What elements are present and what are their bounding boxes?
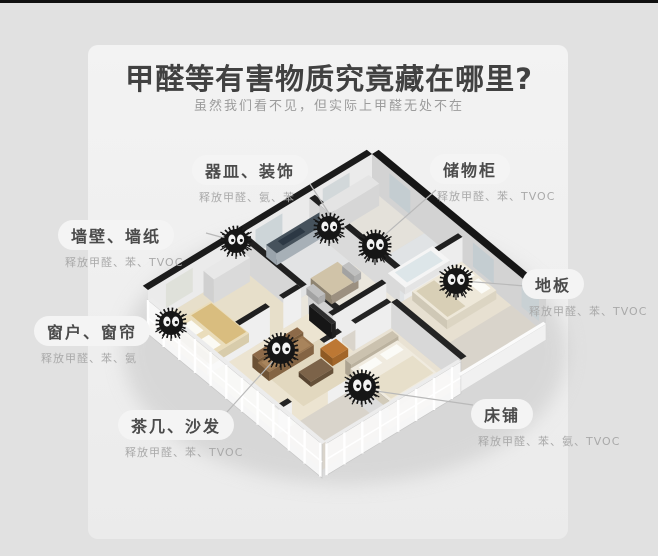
callout-cabinet-detail: 释放甲醛、苯、TVOC xyxy=(430,188,555,204)
callout-vessels-detail: 释放甲醛、氨、苯 xyxy=(192,189,308,205)
callout-wallpaper-detail: 释放甲醛、苯、TVOC xyxy=(58,254,183,270)
callout-wallpaper-label: 墙壁、墙纸 xyxy=(58,220,174,250)
callout-floor-label: 地板 xyxy=(522,269,584,299)
callout-sofa: 茶几、沙发 释放甲醛、苯、TVOC xyxy=(118,410,243,460)
callout-window: 窗户、窗帘 释放甲醛、苯、氨 xyxy=(34,316,150,366)
callout-bed: 床铺 释放甲醛、苯、氨、TVOC xyxy=(471,399,620,449)
page-subtitle: 虽然我们看不见，但实际上甲醛无处不在 xyxy=(0,95,658,114)
callout-sofa-detail: 释放甲醛、苯、TVOC xyxy=(118,444,243,460)
callout-vessels: 器皿、装饰 释放甲醛、氨、苯 xyxy=(192,155,308,205)
callout-bed-label: 床铺 xyxy=(471,399,533,429)
callout-wallpaper: 墙壁、墙纸 释放甲醛、苯、TVOC xyxy=(58,220,183,270)
callout-sofa-label: 茶几、沙发 xyxy=(118,410,234,440)
callout-window-label: 窗户、窗帘 xyxy=(34,316,150,346)
callout-cabinet-label: 储物柜 xyxy=(430,154,510,184)
callout-floor-detail: 释放甲醛、苯、TVOC xyxy=(522,303,647,319)
callout-cabinet: 储物柜 释放甲醛、苯、TVOC xyxy=(430,154,555,204)
callout-vessels-label: 器皿、装饰 xyxy=(192,155,308,185)
callout-bed-detail: 释放甲醛、苯、氨、TVOC xyxy=(471,433,620,449)
callout-window-detail: 释放甲醛、苯、氨 xyxy=(34,350,150,366)
infographic-page: 甲醛等有害物质究竟藏在哪里? 虽然我们看不见，但实际上甲醛无处不在 器皿、装饰 … xyxy=(0,0,658,556)
page-title: 甲醛等有害物质究竟藏在哪里? xyxy=(0,56,658,98)
callout-floor: 地板 释放甲醛、苯、TVOC xyxy=(522,269,647,319)
